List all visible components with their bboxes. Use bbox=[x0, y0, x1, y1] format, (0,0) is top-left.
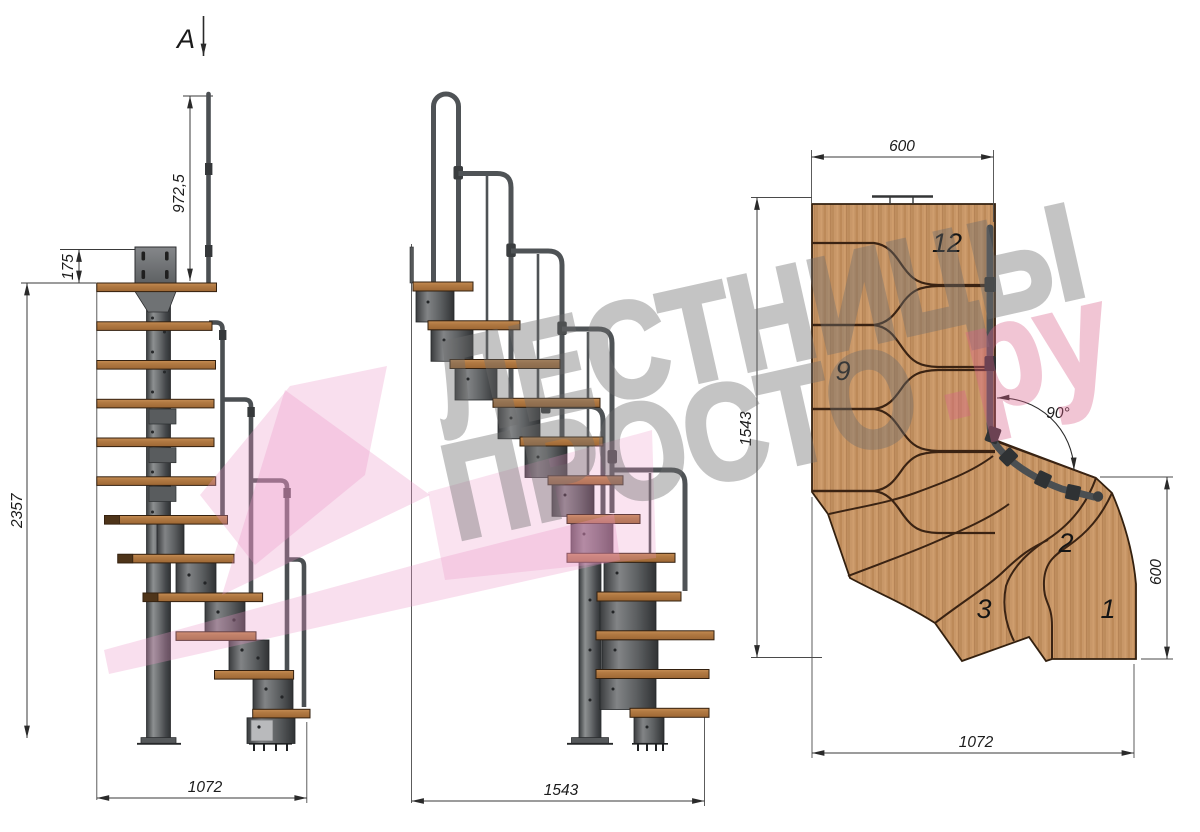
svg-text:1072: 1072 bbox=[188, 779, 223, 796]
svg-text:600: 600 bbox=[1148, 559, 1165, 585]
svg-text:A: A bbox=[175, 24, 195, 54]
svg-text:972,5: 972,5 bbox=[171, 174, 188, 213]
svg-text:1543: 1543 bbox=[544, 782, 579, 799]
svg-text:600: 600 bbox=[889, 138, 915, 155]
svg-text:3: 3 bbox=[976, 594, 991, 624]
svg-text:2357: 2357 bbox=[9, 492, 26, 529]
svg-text:175: 175 bbox=[60, 254, 77, 280]
svg-text:1072: 1072 bbox=[959, 734, 994, 751]
svg-text:2: 2 bbox=[1057, 528, 1073, 558]
svg-text:1: 1 bbox=[1100, 594, 1115, 624]
